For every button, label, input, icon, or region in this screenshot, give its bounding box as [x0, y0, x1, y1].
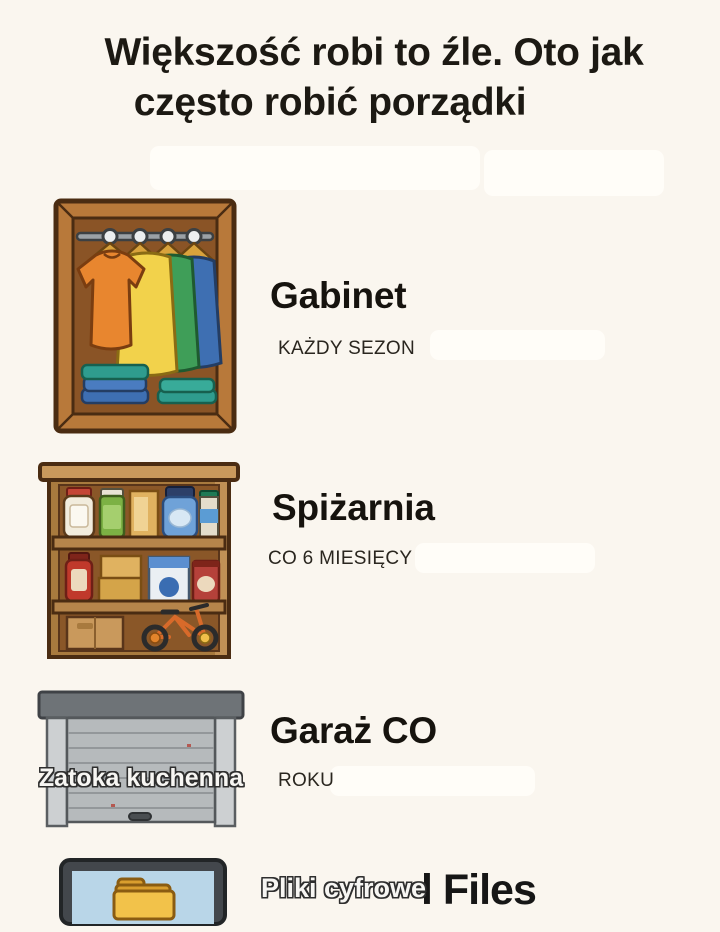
section-frequency-garage: ROKU [278, 770, 334, 792]
cleaning-frequency-infographic: { "page": { "background_color": "#faf6ef… [0, 0, 720, 900]
section-heading-pantry: Spiżarnia [272, 488, 435, 529]
files-background-text: l Files [421, 866, 536, 915]
ghost-artifact [415, 543, 595, 573]
ghost-artifact [430, 330, 605, 360]
ghost-artifact [484, 150, 664, 196]
pantry-shelf-illustration [37, 461, 241, 668]
garage-overlay-label: Zatoka kuchenna [37, 764, 245, 793]
computer-monitor-folder-illustration [58, 857, 228, 932]
section-heading-garage: Garaż CO [270, 711, 437, 752]
section-frequency-closet: KAŻDY SEZON [278, 338, 415, 360]
title-line-2: często robić porządki [0, 78, 690, 128]
title-line-1: Większość robi to źle. Oto jak [14, 28, 720, 78]
wardrobe-closet-illustration [52, 197, 238, 440]
section-frequency-pantry: CO 6 MIESIĘCY [268, 548, 412, 570]
section-heading-closet: Gabinet [270, 276, 406, 317]
page-title: Większość robi to źle. Oto jak często ro… [0, 28, 720, 128]
files-overlay-label: Pliki cyfrowe [261, 873, 426, 904]
ghost-artifact [330, 766, 535, 796]
ghost-artifact [150, 146, 480, 190]
